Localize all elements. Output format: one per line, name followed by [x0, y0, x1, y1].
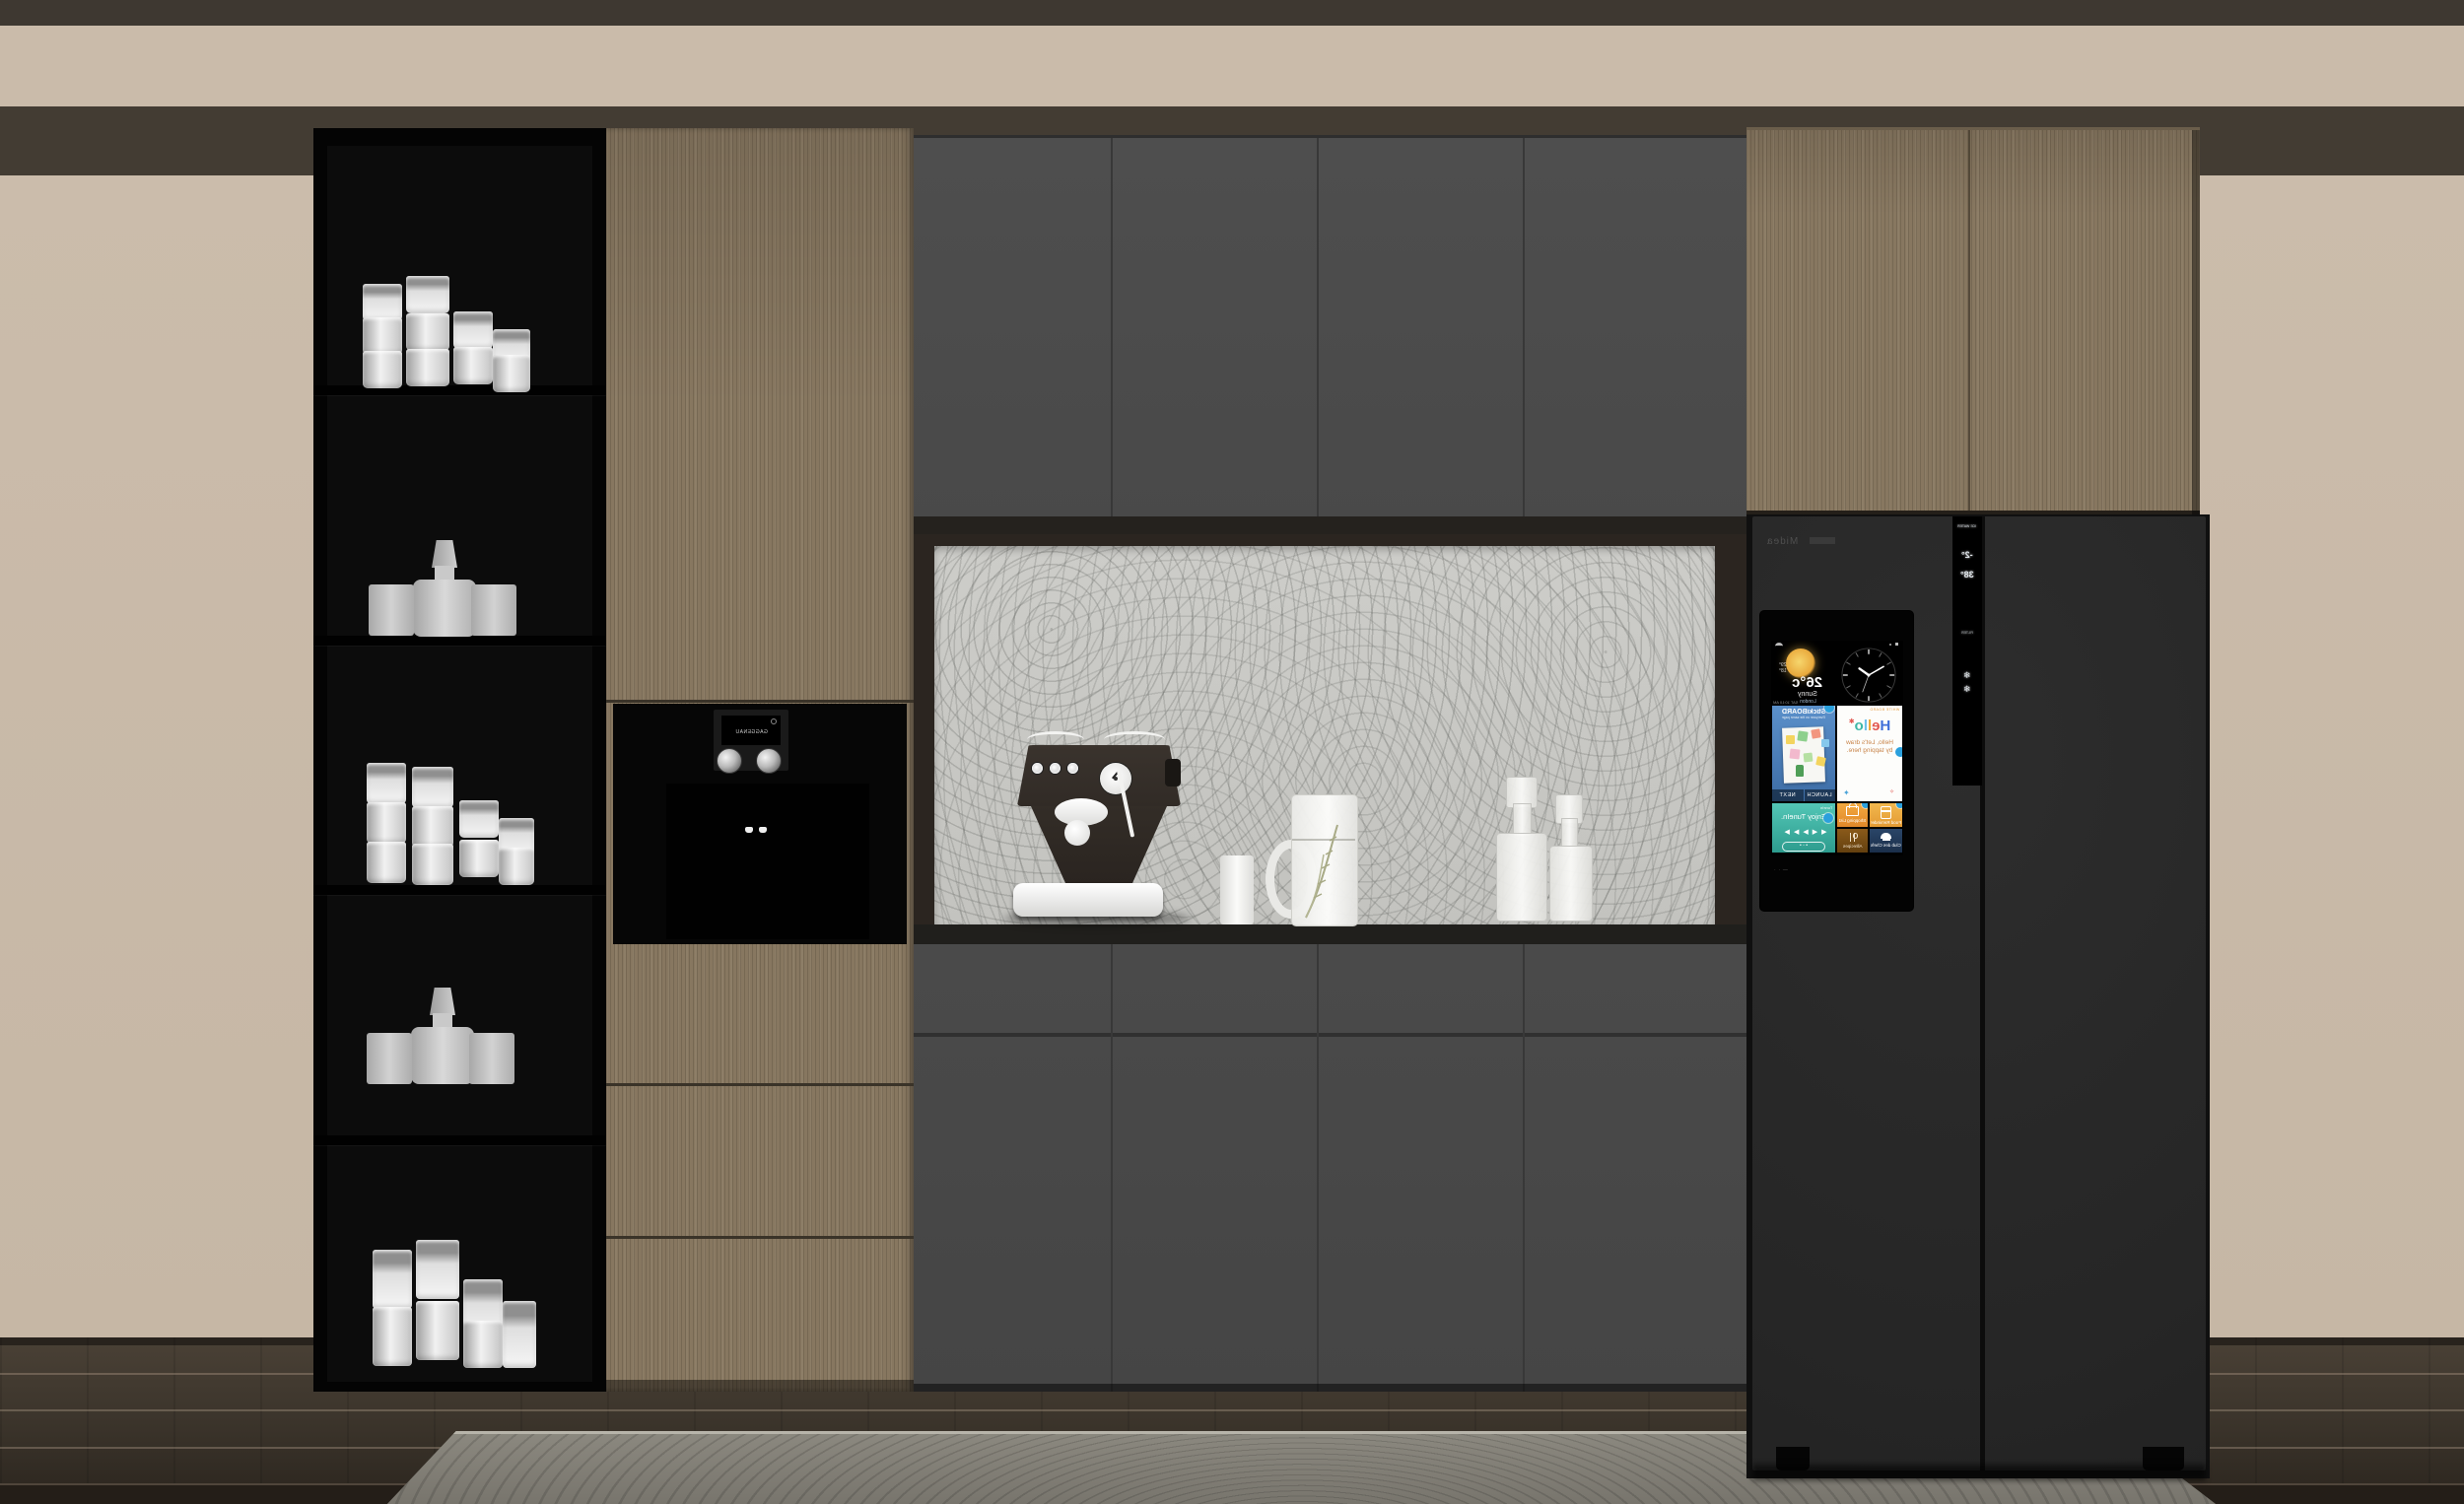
- glass-cup: [363, 351, 402, 388]
- toe-shadow: [606, 1380, 914, 1392]
- shelf-compartment: [327, 1145, 592, 1382]
- glass-tumbler: [369, 584, 414, 636]
- fridge-dispenser-panel[interactable]: ICE WATER -2° 38° FILTER ❄ ❄: [1952, 516, 1982, 786]
- tunein-title: Enjoy TuneIn.: [1781, 812, 1826, 821]
- bottle-sticker: [1796, 765, 1804, 777]
- drawer-seam: [606, 1083, 914, 1086]
- coffee-machine-body: [666, 784, 869, 939]
- coffee-knob-right[interactable]: [756, 748, 782, 774]
- tile-food-reminder[interactable]: Food Reminder: [1870, 803, 1902, 827]
- tall-glass: [373, 1307, 412, 1366]
- volume-pill[interactable]: • ◦ •: [1782, 842, 1825, 852]
- side-shadow: [2192, 130, 2200, 517]
- cabinet-underside: [914, 516, 1746, 534]
- water-icon[interactable]: ❄: [1952, 684, 1982, 695]
- allrecipes-label: Allrecipes: [1843, 844, 1863, 849]
- weather-datetime: SAT 10:10 AM: [1773, 700, 1798, 705]
- door-seam: [1111, 944, 1113, 1392]
- white-cup: [1220, 855, 1254, 924]
- dispenser-top-label: ICE WATER: [1957, 524, 1976, 528]
- media-controls[interactable]: ◀◀▶▶▶: [1772, 828, 1835, 836]
- upper-wall-band: [0, 26, 2464, 106]
- tall-glass: [416, 1240, 459, 1299]
- notification-badge: [1823, 813, 1833, 823]
- confetti-icon: ✦: [1843, 788, 1850, 797]
- door-seam: [1968, 130, 1970, 517]
- shelf-board: [313, 1135, 606, 1145]
- fridge-floor-shadow: [1752, 1465, 2206, 1480]
- fridge-model-mark: [1810, 537, 1835, 544]
- glass-tumbler: [367, 1033, 412, 1084]
- glass-cup: [493, 355, 530, 392]
- glass-cup: [453, 347, 493, 384]
- analog-clock: [1840, 647, 1897, 704]
- shelf-compartment: [327, 895, 592, 1135]
- sticki-subtitle: Everyone on the same page: [1782, 716, 1825, 719]
- glass-cup: [367, 763, 406, 804]
- coffee-knob-left[interactable]: [717, 748, 742, 774]
- tile-hello-board[interactable]: WHITE BOARD Hello✱ Hello, Let's draw by …: [1837, 706, 1902, 801]
- tile-shopping-list[interactable]: Shopping List: [1837, 803, 1868, 827]
- door-seam: [606, 700, 914, 703]
- sticki-launch-button[interactable]: LAUNCH: [1805, 789, 1836, 801]
- door-seam: [1111, 138, 1113, 527]
- tile-club-des-chefs[interactable]: Club des Chefs: [1870, 829, 1902, 853]
- tall-glass: [373, 1250, 412, 1309]
- glass-cup: [367, 802, 406, 844]
- tunein-caption: TuneIn: [1820, 805, 1832, 810]
- decanter: [413, 580, 476, 637]
- plant-sprig: [1294, 807, 1353, 922]
- notification-badge: [1862, 803, 1868, 808]
- drawer-seam: [914, 1033, 1746, 1037]
- glass-cup: [406, 349, 449, 386]
- club-label: Club des Chefs: [1871, 843, 1901, 848]
- glass-cup: [363, 284, 402, 321]
- glass-cup: [406, 276, 449, 313]
- tile-tunein[interactable]: TuneIn Enjoy TuneIn. ◀◀▶▶▶ • ◦ •: [1772, 803, 1835, 853]
- door-seam: [1523, 138, 1525, 527]
- wifi-icon: [1775, 643, 1783, 649]
- fridge-icon: [1881, 806, 1891, 819]
- glass-cup: [453, 311, 493, 349]
- freezer-temp: -2°: [1961, 550, 1973, 560]
- sticky-note: [1804, 753, 1814, 763]
- filter-label: FILTER: [1961, 631, 1973, 635]
- sticki-title: StickiBOARD: [1782, 709, 1825, 716]
- ceiling-strip: [0, 0, 2464, 26]
- glass-tumbler: [471, 584, 516, 636]
- sticky-note: [1786, 735, 1795, 744]
- chef-hat-icon: [1881, 833, 1891, 841]
- countertop: [914, 924, 1746, 944]
- sticki-next-button[interactable]: NEXT: [1772, 789, 1804, 801]
- glass-cup: [412, 767, 453, 808]
- notification-badge: [1895, 747, 1902, 757]
- door-seam: [1317, 944, 1319, 1392]
- coffee-display-text: GAGGENAU: [735, 729, 768, 735]
- toe-shadow: [914, 1384, 1746, 1392]
- fridge-temp: 38°: [1960, 570, 1974, 580]
- sticky-note: [1811, 728, 1820, 738]
- weather-condition: Sunny: [1798, 691, 1817, 698]
- glass-cup: [459, 840, 499, 877]
- shelf-board: [313, 885, 606, 895]
- ice-icon[interactable]: ❄: [1952, 670, 1982, 681]
- coffee-machine-panel: GAGGENAU: [714, 710, 788, 771]
- pressure-gauge: [1100, 763, 1131, 794]
- next-icon: ▶▶: [1781, 829, 1800, 836]
- utensils-icon: [1848, 833, 1858, 842]
- shopping-bag-icon: [1846, 806, 1859, 816]
- fridge-upper-cabinet: [1746, 127, 2200, 517]
- glass-cup: [459, 800, 499, 838]
- espresso-button[interactable]: [1032, 763, 1043, 774]
- decanter: [411, 1027, 474, 1084]
- weather-temp: 26°c: [1792, 674, 1822, 691]
- shelf-board: [313, 636, 606, 646]
- espresso-machine-base: [1013, 883, 1163, 917]
- glass-pitcher: [1291, 794, 1358, 926]
- play-icon: ▶: [1799, 829, 1808, 836]
- tile-allrecipes[interactable]: Allrecipes: [1837, 829, 1868, 853]
- bottle-neck: [1513, 803, 1532, 837]
- espresso-button[interactable]: [1067, 763, 1078, 774]
- open-shelving-unit: [313, 128, 606, 1392]
- sticky-note: [1790, 749, 1801, 760]
- coffee-machine-display: GAGGENAU: [721, 716, 781, 745]
- tile-sticki-board[interactable]: StickiBOARD Everyone on the same page NE…: [1772, 706, 1835, 801]
- fridge-brand-text: Midea: [1766, 536, 1798, 547]
- glass-bottle: [1496, 833, 1547, 922]
- glass-cup: [367, 842, 406, 883]
- confetti-icon: ✧: [1889, 788, 1894, 795]
- notification-badge: [1896, 803, 1902, 808]
- glass-cup: [363, 317, 402, 355]
- kitchen-scene: GAGGENAU: [0, 0, 2464, 1504]
- door-seam: [1523, 944, 1525, 1392]
- sticki-buttons: NEXT LAUNCH: [1772, 789, 1835, 801]
- status-dot-icon: [1889, 644, 1891, 646]
- glass-cup: [499, 848, 534, 885]
- glass-cup: [412, 806, 453, 848]
- glass-bottle: [1549, 846, 1593, 922]
- glass-cup: [406, 313, 449, 351]
- shopping-label: Shopping List: [1839, 818, 1866, 823]
- espresso-button[interactable]: [1050, 763, 1061, 774]
- steam-knob[interactable]: [1165, 759, 1181, 786]
- espresso-machine-head: [1017, 745, 1181, 806]
- status-dot-icon: [1895, 643, 1898, 646]
- screen-footer-marks: · · —: [1774, 869, 1814, 872]
- food-label: Food Reminder: [1871, 820, 1901, 825]
- hello-caption: WHITE BOARD: [1870, 708, 1899, 712]
- glass-cup: [412, 844, 453, 885]
- tall-glass: [463, 1321, 503, 1368]
- drawer-seam: [606, 1236, 914, 1239]
- fridge-screen-ui[interactable]: 29° 18° 26°c Sunny London SAT 10:10 AM: [1771, 641, 1903, 855]
- sticky-note: [1797, 730, 1808, 741]
- door-seam: [1317, 138, 1319, 527]
- fridge-touchscreen[interactable]: 29° 18° 26°c Sunny London SAT 10:10 AM: [1760, 611, 1913, 911]
- coffee-spout: [759, 827, 767, 833]
- hello-word: Hello✱: [1837, 718, 1902, 735]
- upper-cabinets: [914, 135, 1746, 527]
- hello-subtitle: Hello, Let's draw by tapping here.: [1843, 739, 1896, 755]
- power-icon: [771, 718, 777, 724]
- coffee-spout: [745, 827, 753, 833]
- sticky-note: [1821, 739, 1829, 747]
- sticky-note: [1815, 756, 1826, 767]
- base-cabinets: [914, 944, 1746, 1392]
- glass-tumbler: [469, 1033, 514, 1084]
- shelf-board: [313, 385, 606, 395]
- prev-icon: ◀◀: [1809, 829, 1827, 836]
- tall-glass: [416, 1301, 459, 1360]
- portafilter-handle: [1064, 820, 1090, 846]
- tall-glass: [503, 1301, 536, 1368]
